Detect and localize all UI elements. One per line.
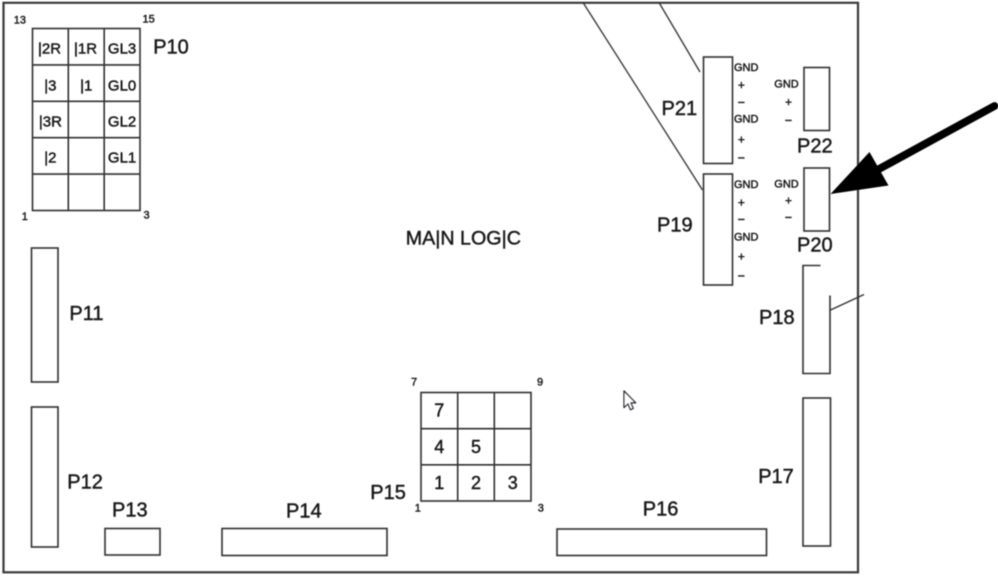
svg-text:P17: P17: [758, 466, 794, 488]
svg-text:|2: |2: [44, 150, 56, 167]
svg-text:|1: |1: [80, 78, 92, 95]
svg-text:3: 3: [538, 503, 544, 515]
svg-text:−: −: [738, 213, 745, 227]
svg-text:+: +: [738, 133, 745, 147]
svg-text:13: 13: [14, 14, 26, 26]
svg-text:|2R: |2R: [38, 41, 61, 58]
svg-text:−: −: [785, 211, 792, 225]
svg-text:GL2: GL2: [108, 114, 136, 131]
svg-text:GL3: GL3: [108, 41, 136, 58]
svg-text:5: 5: [471, 437, 481, 457]
svg-text:7: 7: [434, 401, 444, 421]
svg-text:P11: P11: [69, 303, 103, 325]
svg-text:+: +: [785, 95, 792, 109]
svg-text:−: −: [785, 113, 792, 127]
svg-text:P12: P12: [67, 472, 103, 494]
svg-text:P13: P13: [112, 500, 148, 522]
svg-text:3: 3: [144, 210, 150, 222]
svg-text:GND: GND: [774, 79, 799, 91]
svg-text:−: −: [738, 269, 745, 283]
svg-text:P21: P21: [662, 98, 698, 120]
svg-text:|1R: |1R: [74, 41, 97, 58]
svg-text:3: 3: [508, 473, 518, 493]
svg-text:|3R: |3R: [39, 114, 62, 131]
svg-text:|3: |3: [44, 78, 56, 95]
svg-text:P22: P22: [797, 136, 833, 158]
svg-text:P15: P15: [370, 482, 406, 504]
svg-text:1: 1: [434, 473, 444, 493]
svg-text:7: 7: [411, 376, 417, 388]
svg-text:GND: GND: [734, 232, 759, 244]
svg-text:GND: GND: [734, 114, 759, 126]
svg-text:2: 2: [471, 473, 481, 493]
svg-text:+: +: [738, 250, 745, 264]
svg-text:GND: GND: [734, 62, 759, 74]
svg-text:P14: P14: [286, 501, 322, 523]
svg-text:P16: P16: [643, 499, 679, 521]
svg-text:−: −: [738, 151, 745, 165]
svg-text:15: 15: [143, 14, 155, 26]
svg-text:9: 9: [537, 376, 543, 388]
svg-text:GL1: GL1: [108, 150, 136, 167]
svg-text:GND: GND: [774, 178, 799, 190]
svg-text:1: 1: [415, 503, 421, 515]
svg-text:1: 1: [22, 211, 28, 223]
svg-text:GL0: GL0: [108, 78, 136, 95]
svg-text:P19: P19: [657, 215, 693, 237]
svg-text:P18: P18: [759, 307, 795, 329]
svg-text:P20: P20: [797, 234, 833, 256]
svg-text:GND: GND: [734, 179, 759, 191]
svg-text:MA|N LOG|C: MA|N LOG|C: [406, 228, 521, 250]
svg-text:−: −: [738, 96, 745, 110]
svg-text:+: +: [738, 78, 745, 92]
svg-text:+: +: [738, 196, 745, 210]
svg-text:+: +: [785, 194, 792, 208]
svg-text:4: 4: [434, 437, 444, 457]
svg-text:P10: P10: [153, 36, 189, 58]
